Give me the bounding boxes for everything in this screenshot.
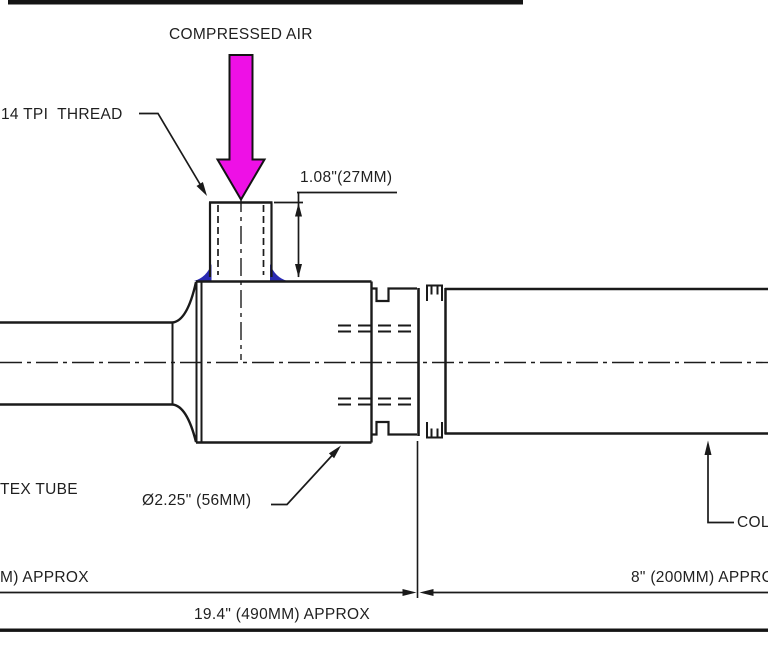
cold-leader-line [708, 445, 734, 523]
retaining-clip-bottom [427, 422, 442, 438]
dim-arrowhead-down-icon [295, 264, 302, 278]
diameter-leader-line [271, 449, 339, 505]
thread-leader-line [139, 114, 204, 191]
cold-end-label: COLD [737, 514, 768, 531]
retaining-clip-top [427, 286, 442, 302]
weld-fillet-right [270, 264, 288, 281]
inlet-height-dimension [274, 193, 397, 278]
vortex-tube-drawing: COMPRESSED AIR 14 TPI THREAD 1.08"(27MM)… [0, 0, 768, 665]
top-border-line [8, 0, 523, 5]
left-length-dim-label: M) APPROX [0, 569, 89, 586]
total-dimension-line [0, 629, 768, 632]
inlet-height-dim-label: 1.08"(27MM) [300, 169, 392, 186]
weld-fillet-left [194, 264, 212, 281]
hidden-thread-lines [338, 326, 416, 405]
compressed-air-label: COMPRESSED AIR [169, 26, 313, 43]
thread-leader-arrowhead-icon [197, 182, 208, 196]
total-length-dim-label: 19.4" (490MM) APPROX [194, 606, 370, 623]
body-diameter-dim-label: Ø2.25" (56MM) [142, 492, 251, 509]
technical-drawing-canvas [0, 0, 768, 665]
dim-arrowhead-left-icon [420, 589, 434, 596]
cold-leader-arrowhead-icon [705, 441, 712, 456]
thread-label: 14 TPI THREAD [1, 106, 123, 123]
compressed-air-arrow-icon [218, 55, 265, 200]
dim-arrowhead-up-icon [295, 203, 302, 217]
vortex-tube-label: TEX TUBE [0, 481, 78, 498]
cold-muffler-outline [445, 288, 768, 435]
dim-arrowhead-right-icon [403, 589, 417, 596]
right-length-dim-label: 8" (200MM) APPROX [631, 569, 768, 586]
